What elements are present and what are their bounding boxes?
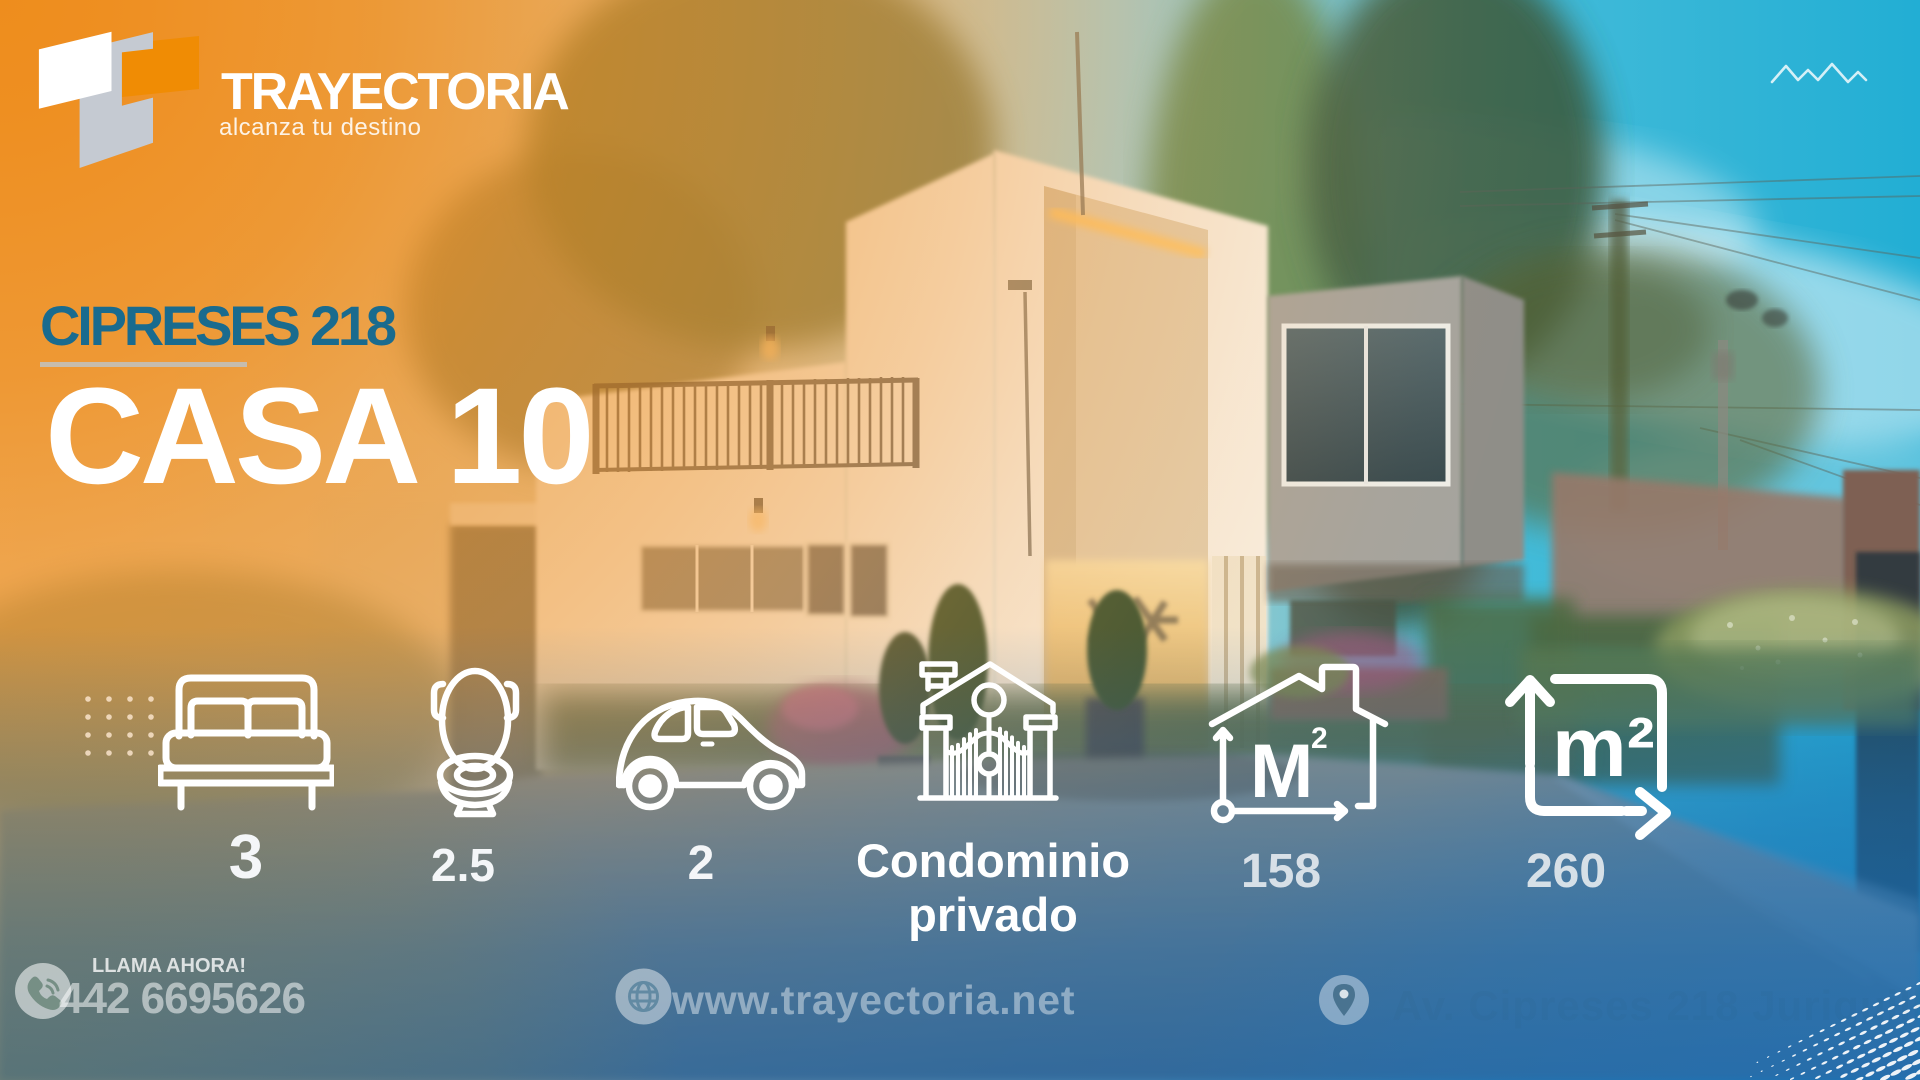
svg-text:2: 2 bbox=[1311, 722, 1328, 755]
svg-text:M: M bbox=[1250, 729, 1313, 814]
svg-text:m²: m² bbox=[1552, 700, 1655, 794]
